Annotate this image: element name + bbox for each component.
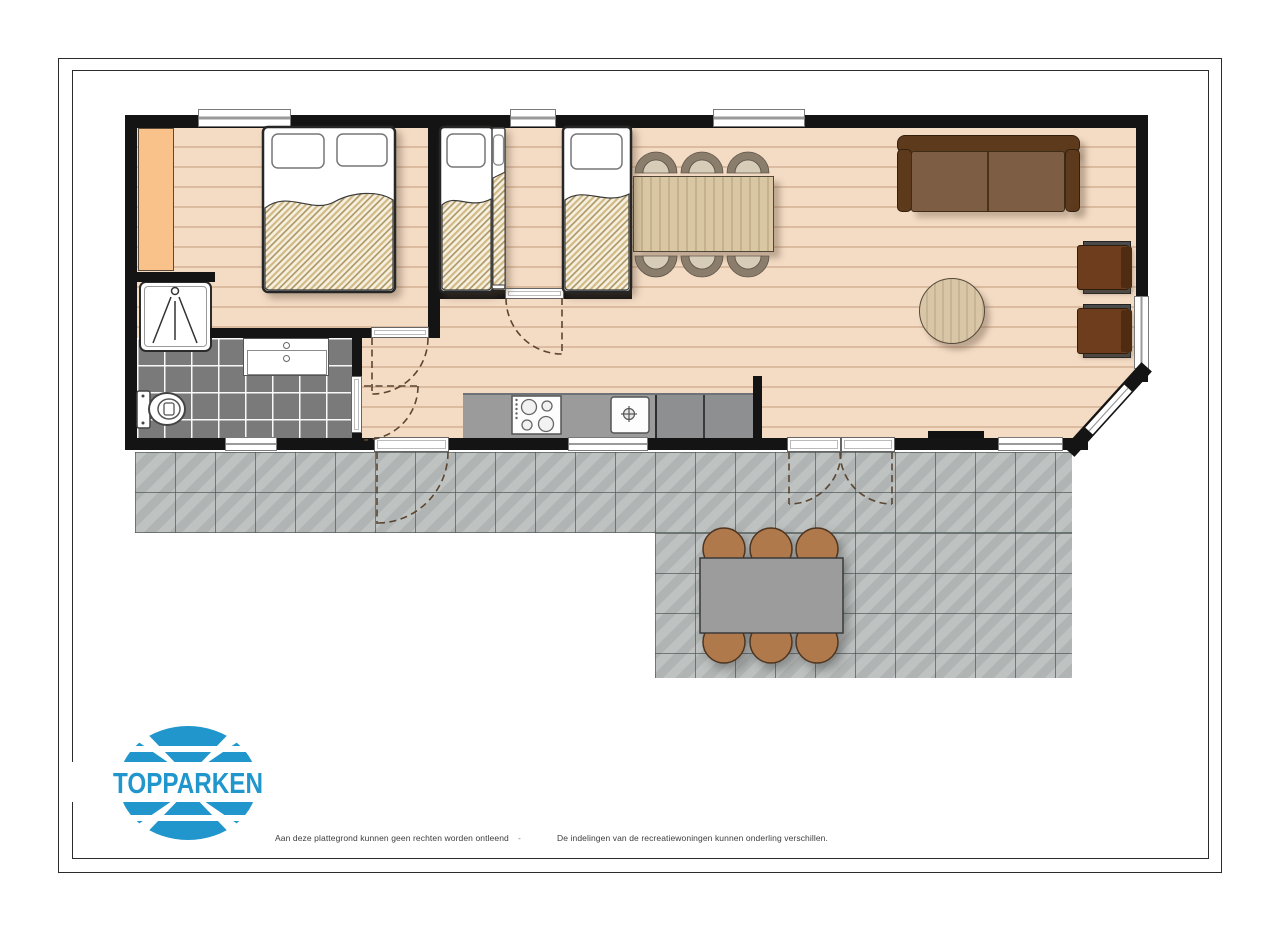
- pillow: [272, 134, 324, 168]
- terrace-table: [700, 558, 843, 633]
- blanket: [442, 199, 491, 290]
- floorplan-page: TOPPARKEN Aan deze plattegrond kunnen ge…: [0, 0, 1279, 929]
- footer-disclaimer-right: De indelingen van de recreatiewoningen k…: [557, 833, 828, 843]
- footer-separator: -: [518, 833, 521, 843]
- pillow: [337, 134, 387, 166]
- toilet: [137, 391, 185, 428]
- pillow: [494, 135, 504, 165]
- pillow: [447, 134, 485, 167]
- bay-corner-wall: [1074, 372, 1142, 447]
- bunk-bed: [440, 127, 505, 292]
- kitchen-sink: [611, 397, 649, 433]
- blanket: [265, 193, 393, 290]
- shower-icon: [153, 288, 197, 344]
- double-bed: [263, 127, 395, 292]
- dining-chairs: [635, 152, 769, 277]
- blanket: [565, 194, 629, 290]
- terrace-dining-set: [700, 528, 843, 663]
- cooktop: [512, 396, 561, 434]
- footer-disclaimer-left: Aan deze plattegrond kunnen geen rechten…: [275, 833, 509, 843]
- single-bed: [563, 127, 631, 292]
- blanket: [493, 172, 505, 285]
- pillow: [571, 134, 622, 169]
- logo-text: TOPPARKEN: [113, 768, 263, 800]
